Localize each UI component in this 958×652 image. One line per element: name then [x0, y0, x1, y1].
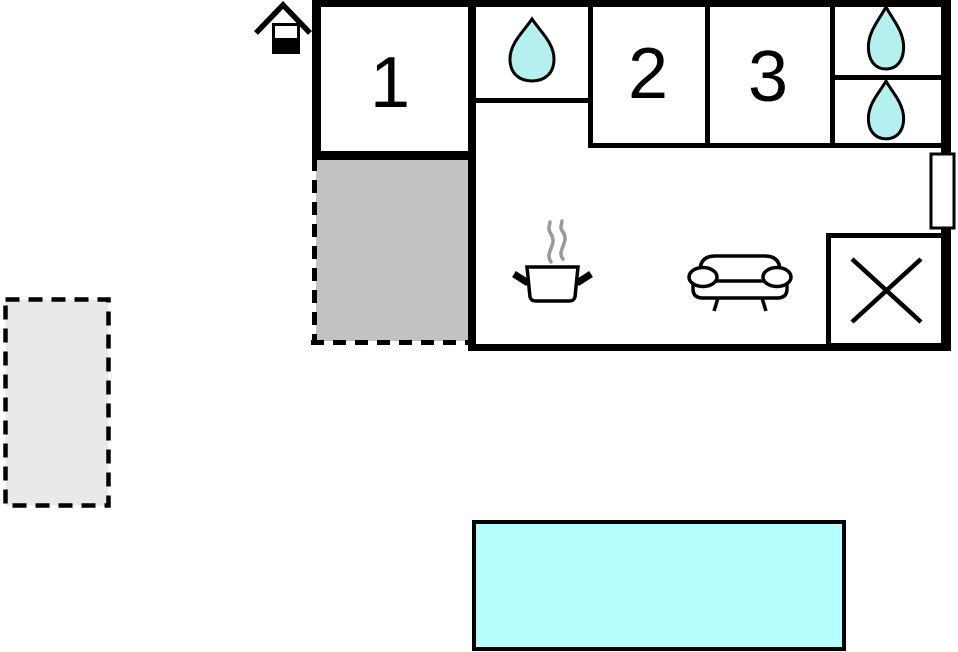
- entrance-base: [273, 38, 299, 53]
- sofa-leg-right: [762, 298, 766, 311]
- wall-bedrooms-bottom: [588, 143, 951, 148]
- house-entrance-icon: [256, 5, 310, 53]
- wall-bedroom2-bedroom3: [705, 0, 710, 148]
- sofa-icon: [689, 256, 791, 311]
- wall-top: [312, 0, 951, 7]
- sofa-armrest-left: [689, 268, 717, 287]
- sofa-armrest-right: [763, 268, 791, 287]
- bedroom-3-label: 3: [748, 37, 788, 117]
- wall-bath1-bottom: [468, 98, 593, 103]
- steam-line: [561, 221, 565, 259]
- bedroom-1-label: 1: [370, 43, 410, 123]
- room-labels: 1 2 3: [370, 34, 788, 123]
- sofa-leg-left: [714, 298, 718, 311]
- water-drop-icon: [868, 7, 903, 69]
- wall-room1-living: [468, 0, 476, 350]
- patio-area: [6, 300, 109, 506]
- swimming-pool: [474, 522, 844, 649]
- wall-bathrooms-divider: [832, 75, 944, 80]
- annex-room: [829, 236, 944, 346]
- cooking-pot-icon: [514, 221, 591, 301]
- bedroom-2-label: 2: [628, 34, 668, 114]
- wall-bedroom3-bathrooms: [830, 0, 835, 148]
- water-drop-icon: [868, 81, 903, 139]
- pot-handle-right: [577, 274, 591, 283]
- floor-plan: 1 2 3: [0, 0, 958, 652]
- pot-handle-left: [514, 274, 528, 283]
- steam-line: [549, 222, 553, 262]
- wall-room1-bottom: [312, 151, 476, 160]
- wall-bath1-bedroom2: [588, 0, 593, 148]
- wall-left: [312, 0, 321, 160]
- floor-plan-canvas: 1 2 3: [0, 0, 958, 652]
- window-marker: [931, 154, 954, 228]
- water-drop-icon: [510, 19, 554, 81]
- covered-terrace: [311, 158, 468, 345]
- covered-terrace-area: [316, 160, 468, 341]
- pot-body: [527, 267, 578, 301]
